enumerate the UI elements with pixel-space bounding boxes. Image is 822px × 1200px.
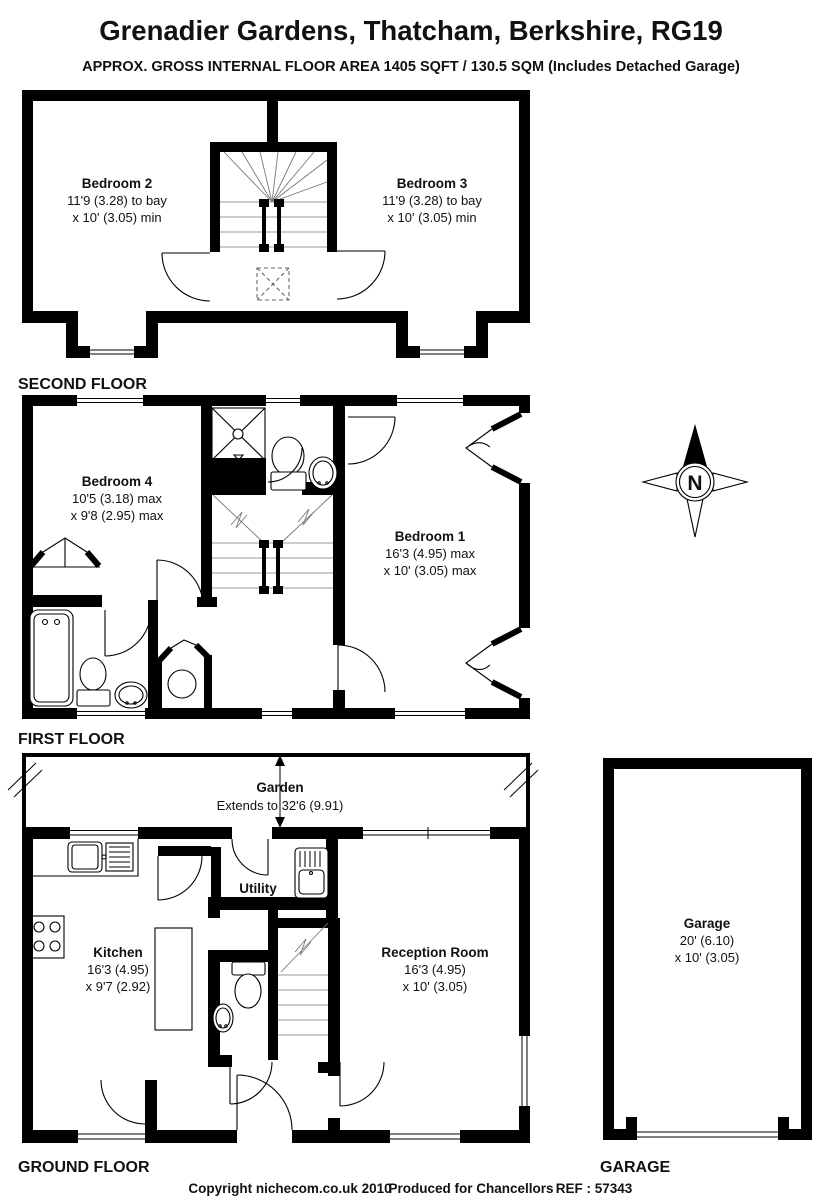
- ground-floor-stairs: [278, 923, 328, 1035]
- bathroom-toilet: [77, 658, 110, 706]
- utility-label: Utility: [239, 881, 277, 896]
- svg-text:x 10' (3.05): x 10' (3.05): [403, 979, 468, 994]
- garage-title: GARAGE: [600, 1159, 671, 1176]
- back-door-opening: [232, 827, 272, 839]
- second-floor-stairs: [220, 152, 327, 252]
- first-floor-stairs: [212, 495, 333, 594]
- svg-text:Garage: Garage: [684, 916, 731, 931]
- svg-text:x 10' (3.05): x 10' (3.05): [675, 950, 740, 965]
- svg-text:Bedroom 4: Bedroom 4: [82, 474, 153, 489]
- svg-text:Reception Room: Reception Room: [381, 945, 488, 960]
- footer-copyright: Copyright nichecom.co.uk 2010: [188, 1181, 391, 1196]
- garage-plan: Garage 20' (6.10) x 10' (3.05) GARAGE: [600, 758, 812, 1176]
- floor-area-subtitle: APPROX. GROSS INTERNAL FLOOR AREA 1405 S…: [82, 59, 740, 75]
- svg-text:x 9'8 (2.95) max: x 9'8 (2.95) max: [71, 508, 164, 523]
- svg-text:Extends to 32'6 (9.91): Extends to 32'6 (9.91): [217, 798, 344, 813]
- bathroom-basin: [115, 682, 147, 708]
- svg-text:Bedroom 3: Bedroom 3: [397, 176, 468, 191]
- garage-label: Garage 20' (6.10) x 10' (3.05): [675, 916, 740, 965]
- kitchen-label: Kitchen 16'3 (4.95) x 9'7 (2.92): [86, 945, 151, 994]
- svg-text:Bedroom 1: Bedroom 1: [395, 529, 466, 544]
- dormer-window-right: [420, 347, 464, 357]
- kitchen-hob: [30, 916, 64, 958]
- cloakroom-toilet: [232, 962, 265, 1008]
- bay-window-top-right: [466, 414, 521, 482]
- kitchen-sink: [68, 842, 133, 872]
- cupboard-door: [158, 640, 208, 662]
- stair-handrail: [259, 540, 283, 594]
- svg-text:x 10' (3.05) min: x 10' (3.05) min: [387, 210, 476, 225]
- svg-text:16'3 (4.95) max: 16'3 (4.95) max: [385, 546, 475, 561]
- stair-break-mark: [298, 509, 314, 525]
- garage-walls: [603, 758, 812, 1140]
- garden-boundary: [8, 753, 538, 838]
- wc-toilet: [271, 437, 306, 490]
- first-floor-plan: Bedroom 4 10'5 (3.18) max x 9'8 (2.95) m…: [18, 395, 530, 748]
- footer-reference: REF : 57343: [556, 1181, 633, 1196]
- front-door-opening: [237, 1130, 292, 1143]
- footer-produced-for: Produced for Chancellors: [388, 1181, 553, 1196]
- svg-text:Bedroom 2: Bedroom 2: [82, 176, 153, 191]
- bathroom-bathtub: [30, 610, 73, 706]
- stair-handrail: [259, 199, 284, 252]
- compass-west-point: [643, 473, 677, 491]
- compass-north-label: N: [687, 472, 702, 495]
- page-title: Grenadier Gardens, Thatcham, Berkshire, …: [99, 15, 723, 46]
- shower-cubicle: [212, 408, 265, 460]
- stair-break-mark: [295, 939, 311, 955]
- floorplan-canvas: Grenadier Gardens, Thatcham, Berkshire, …: [0, 0, 822, 1200]
- bedroom2-label: Bedroom 2 11'9 (3.28) to bay x 10' (3.05…: [67, 176, 167, 225]
- svg-text:x 10' (3.05) max: x 10' (3.05) max: [384, 563, 477, 578]
- footer: Copyright nichecom.co.uk 2010 Produced f…: [188, 1181, 632, 1196]
- kitchen-counter: [33, 839, 192, 1030]
- wc-basin: [309, 457, 337, 489]
- svg-text:20' (6.10): 20' (6.10): [680, 933, 735, 948]
- dormer-window-left: [90, 347, 134, 357]
- stair-treads: [220, 202, 327, 247]
- second-floor-plan: Bedroom 2 11'9 (3.28) to bay x 10' (3.05…: [18, 90, 530, 393]
- svg-text:11'9 (3.28) to bay: 11'9 (3.28) to bay: [67, 193, 167, 208]
- compass-east-point: [713, 473, 747, 491]
- bedroom3-label: Bedroom 3 11'9 (3.28) to bay x 10' (3.05…: [382, 176, 482, 225]
- svg-text:Garden: Garden: [256, 780, 303, 795]
- second-floor-title: SECOND FLOOR: [18, 376, 147, 393]
- svg-text:10'5 (3.18) max: 10'5 (3.18) max: [72, 491, 162, 506]
- cloakroom-basin: [213, 1004, 233, 1032]
- cylinder-cupboard-tank: [168, 670, 196, 698]
- svg-text:x 9'7 (2.92): x 9'7 (2.92): [86, 979, 151, 994]
- second-floor-doors: [162, 251, 385, 301]
- stair-fan-lines: [224, 152, 327, 202]
- svg-text:Kitchen: Kitchen: [93, 945, 143, 960]
- svg-text:16'3 (4.95): 16'3 (4.95): [87, 962, 149, 977]
- svg-text:11'9 (3.28) to bay: 11'9 (3.28) to bay: [382, 193, 482, 208]
- compass-rose: N: [643, 424, 747, 537]
- loft-hatch: [257, 268, 289, 300]
- bay-window-bottom-right: [466, 629, 521, 697]
- svg-text:x 10' (3.05) min: x 10' (3.05) min: [72, 210, 161, 225]
- first-floor-title: FIRST FLOOR: [18, 731, 125, 748]
- bedroom1-label: Bedroom 1 16'3 (4.95) max x 10' (3.05) m…: [384, 529, 477, 578]
- wardrobe-doors: [30, 538, 100, 567]
- ground-floor-title: GROUND FLOOR: [18, 1159, 150, 1176]
- garage-door: [637, 1129, 778, 1140]
- reception-label: Reception Room 16'3 (4.95) x 10' (3.05): [381, 945, 488, 994]
- svg-text:16'3 (4.95): 16'3 (4.95): [404, 962, 466, 977]
- stair-treads: [278, 975, 328, 1035]
- floorplan-page: Grenadier Gardens, Thatcham, Berkshire, …: [0, 0, 822, 1200]
- stair-treads: [212, 543, 333, 588]
- utility-sink: [295, 848, 328, 898]
- ground-floor-plan: Garden Extends to 32'6 (9.91): [8, 753, 538, 1176]
- bedroom4-label: Bedroom 4 10'5 (3.18) max x 9'8 (2.95) m…: [71, 474, 164, 523]
